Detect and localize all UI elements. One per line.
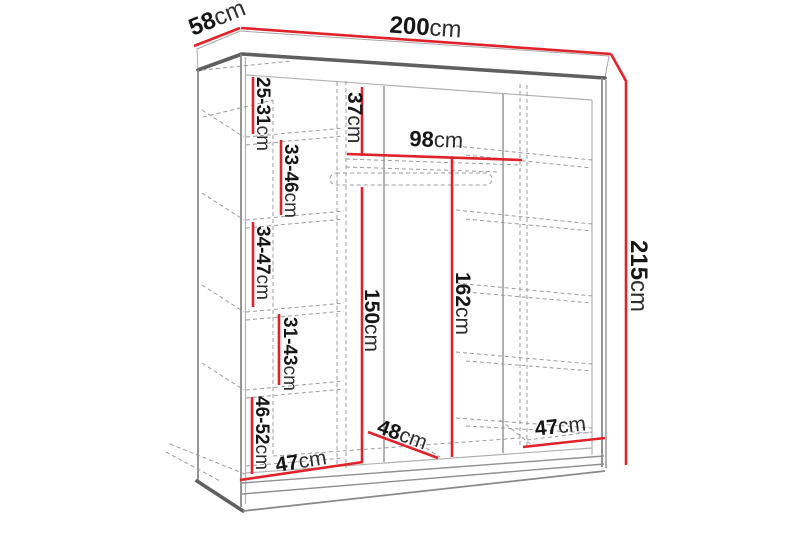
dim-label-middle-inner-height: 162cm (451, 272, 474, 335)
wardrobe-side-bottom-edge (197, 481, 243, 511)
dim-label-left-shelf-2: 33-46cm (280, 144, 301, 218)
hanging-rod (330, 173, 492, 185)
dim-label-section-middle: 48cm (374, 415, 430, 454)
dim-label-section-left: 47cm (274, 446, 328, 477)
dim-label-top-shelf-drop: 37cm (343, 92, 366, 143)
plinth-bottom-edge (243, 471, 605, 511)
dim-label-hanging-width: 98cm (409, 126, 464, 153)
floor-side-hidden-edge (170, 444, 245, 474)
wardrobe-diagram: 58cm 200cm 215cm 37cm 98cm 150cm 162cm 2… (0, 0, 800, 533)
dim-label-section-right: 47cm (534, 412, 587, 440)
dim-label-left-shelf-1: 25-31cm (252, 77, 273, 151)
floor-depth-edge-right (500, 420, 533, 446)
floor-side-hidden-edge2 (166, 452, 220, 481)
dim-label-hanging-height: 150cm (360, 289, 383, 352)
dim-line-height (611, 54, 626, 465)
dim-label-left-shelf-5: 46-52cm (251, 396, 272, 470)
middle-section (273, 159, 522, 457)
dim-label-width: 200cm (389, 12, 463, 44)
right-column-shelves (456, 146, 592, 446)
wardrobe-top-inner-edge (246, 75, 592, 100)
dim-label-height: 215cm (625, 240, 652, 312)
dim-label-left-shelf-3: 34-47cm (252, 226, 273, 300)
middle-top-shelf-back (346, 167, 500, 172)
dim-label-left-shelf-4: 31-43cm (279, 317, 300, 391)
dim-line-hanging-width (347, 154, 522, 160)
